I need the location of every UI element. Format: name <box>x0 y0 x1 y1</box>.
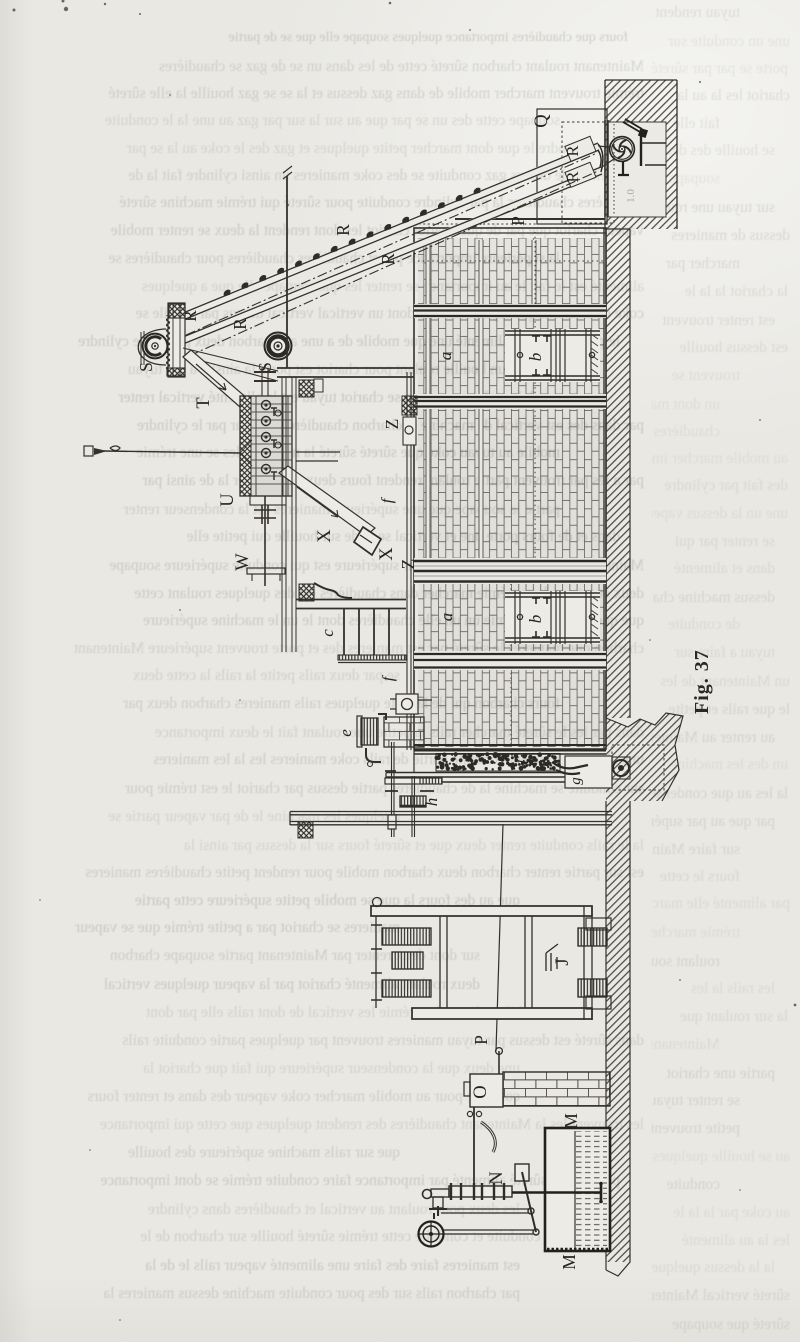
svg-text:R: R <box>333 224 353 236</box>
svg-text:Z: Z <box>398 559 418 570</box>
svg-text:R: R <box>563 171 582 182</box>
svg-text:Z: Z <box>382 419 402 430</box>
svg-text:Q: Q <box>532 114 552 128</box>
svg-text:R: R <box>563 145 582 156</box>
svg-text:J: J <box>553 958 573 965</box>
svg-text:M: M <box>561 1113 581 1129</box>
svg-text:1.0: 1.0 <box>625 189 637 203</box>
svg-text:f: f <box>380 674 397 681</box>
svg-text:a: a <box>436 352 455 361</box>
svg-text:X: X <box>315 529 335 543</box>
svg-text:T: T <box>194 397 214 408</box>
svg-text:b: b <box>526 353 545 362</box>
svg-text:g: g <box>568 777 584 785</box>
svg-text:P: P <box>508 216 528 226</box>
svg-text:S: S <box>136 362 156 372</box>
svg-text:U: U <box>218 493 238 506</box>
svg-text:X: X <box>377 547 397 561</box>
svg-text:f: f <box>379 496 396 503</box>
svg-text:Fig. 37: Fig. 37 <box>691 649 713 714</box>
svg-text:O: O <box>471 1085 491 1098</box>
svg-text:a: a <box>437 613 456 622</box>
svg-text:N: N <box>487 1171 507 1184</box>
svg-text:R: R <box>230 318 250 330</box>
svg-text:h: h <box>422 798 441 807</box>
svg-text:S: S <box>255 362 275 372</box>
svg-text:P: P <box>471 1035 491 1045</box>
svg-text:M: M <box>559 1254 579 1270</box>
svg-text:c: c <box>318 629 337 637</box>
svg-text:d: d <box>516 760 532 768</box>
svg-text:W: W <box>233 553 253 571</box>
svg-text:R: R <box>378 253 398 265</box>
svg-text:b: b <box>526 615 545 624</box>
svg-text:e: e <box>336 729 355 737</box>
